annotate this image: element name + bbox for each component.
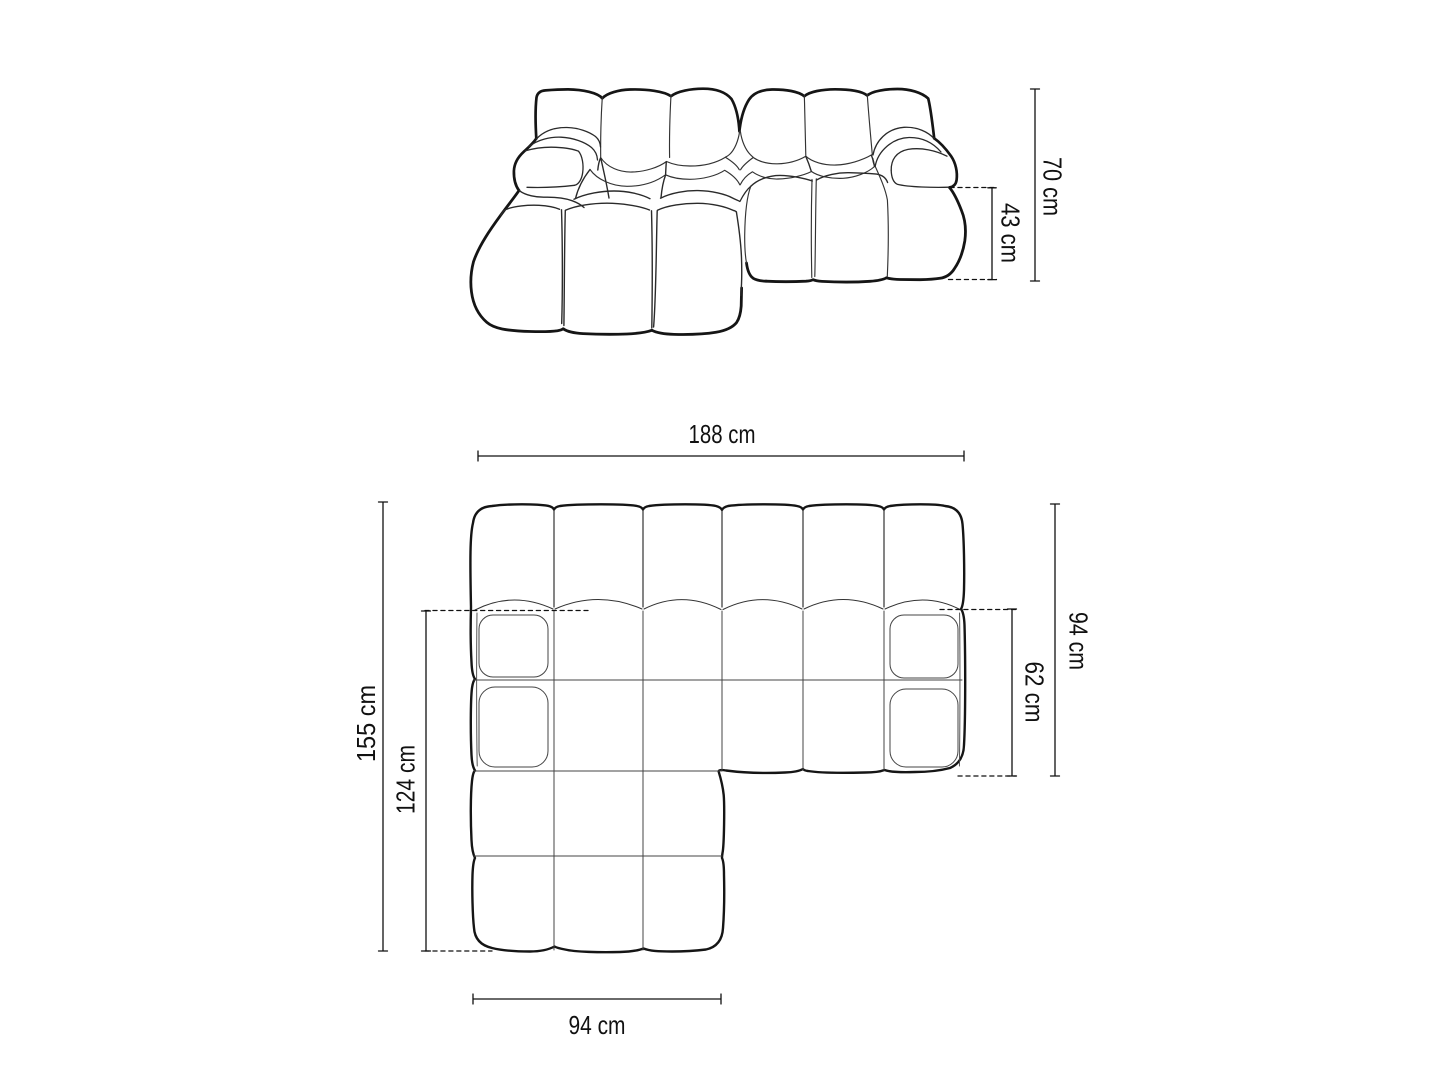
svg-text:70 cm: 70 cm <box>1038 157 1068 216</box>
svg-text:155 cm: 155 cm <box>351 685 381 762</box>
svg-text:188 cm: 188 cm <box>689 419 756 449</box>
svg-text:124 cm: 124 cm <box>391 745 421 814</box>
svg-text:62 cm: 62 cm <box>1020 662 1050 723</box>
svg-text:94 cm: 94 cm <box>1064 612 1094 670</box>
svg-text:43 cm: 43 cm <box>996 203 1026 263</box>
svg-text:94 cm: 94 cm <box>569 1010 626 1040</box>
